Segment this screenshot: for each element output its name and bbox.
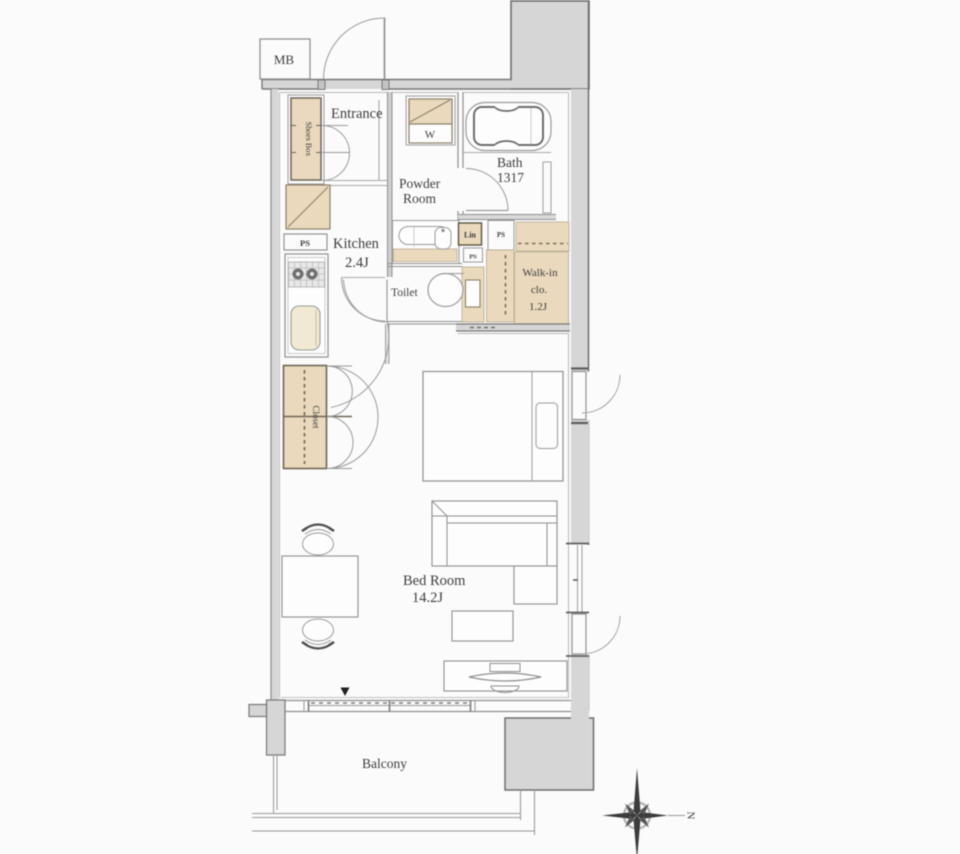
svg-text:PS: PS	[497, 231, 505, 239]
svg-text:Lin: Lin	[464, 231, 477, 240]
svg-text:PS: PS	[469, 254, 477, 261]
svg-text:Bed Room: Bed Room	[403, 573, 466, 589]
svg-text:1317: 1317	[497, 170, 524, 185]
svg-text:2.4J: 2.4J	[345, 255, 369, 271]
svg-text:Shoes Box: Shoes Box	[304, 122, 313, 156]
svg-text:Kitchen: Kitchen	[333, 236, 380, 252]
svg-text:Balcony: Balcony	[362, 756, 407, 771]
svg-text:Closet: Closet	[311, 405, 321, 429]
svg-text:PS: PS	[300, 238, 310, 248]
svg-text:clo.: clo.	[531, 284, 547, 296]
svg-text:Entrance: Entrance	[331, 106, 383, 122]
svg-text:Powder: Powder	[399, 176, 441, 191]
svg-text:1.2J: 1.2J	[529, 301, 548, 313]
svg-text:Room: Room	[403, 191, 437, 206]
svg-text:W: W	[425, 129, 436, 141]
svg-text:N: N	[685, 812, 697, 820]
svg-text:MB: MB	[274, 52, 295, 67]
svg-text:Toilet: Toilet	[391, 287, 418, 299]
svg-text:Walk-in: Walk-in	[522, 267, 558, 279]
svg-text:Bath: Bath	[497, 155, 523, 170]
svg-text:14.2J: 14.2J	[412, 590, 443, 606]
